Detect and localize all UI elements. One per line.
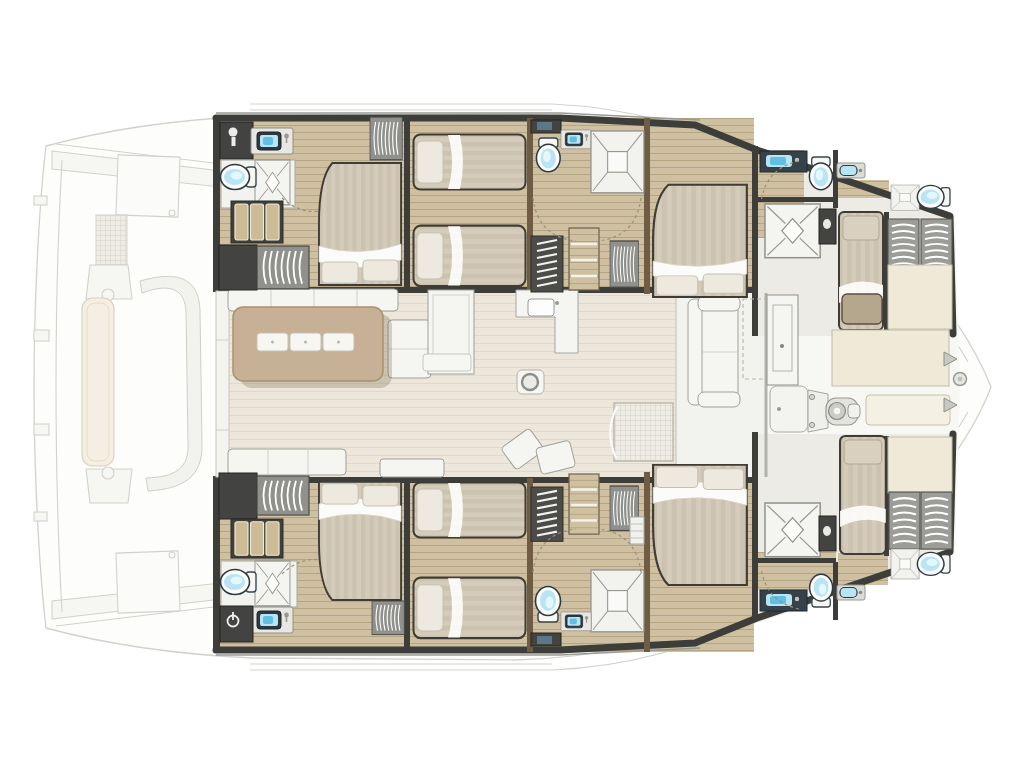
toilet <box>221 570 257 595</box>
toilet <box>917 552 950 575</box>
wardrobe <box>889 492 920 549</box>
berth-foot-cushion <box>842 294 882 324</box>
galley-faucet <box>555 301 559 305</box>
handle <box>823 219 831 229</box>
companionway-port <box>531 227 639 292</box>
shower <box>765 204 820 258</box>
windlass <box>826 398 860 425</box>
wood-step <box>610 227 639 240</box>
sun-pad <box>832 330 949 386</box>
bolt <box>809 422 814 427</box>
coffee-table <box>423 354 471 371</box>
deck-locker-top <box>116 155 180 217</box>
technical-hatch <box>614 403 673 461</box>
floor-plan-canvas: Catamaran yacht floor plan — top-down ca… <box>0 0 1024 768</box>
hanging-locker <box>257 246 309 289</box>
door-handle <box>780 344 784 348</box>
hanging-locker <box>257 476 309 515</box>
vanity-sink-basin <box>770 596 786 604</box>
divider <box>752 146 758 336</box>
bow-roller-pin <box>958 377 963 382</box>
double-bed <box>319 163 401 285</box>
placemat <box>323 333 354 351</box>
sun-pad <box>866 395 950 425</box>
double-bed <box>653 185 747 297</box>
locker <box>219 245 257 290</box>
twin-bed <box>414 483 526 538</box>
toilet <box>809 157 832 190</box>
wardrobe-drawers <box>231 519 283 558</box>
bolt <box>809 394 814 399</box>
vanity-sink-basin <box>770 157 786 165</box>
floor-plan-page: Catamaran yacht floor plan — top-down ca… <box>0 0 1024 768</box>
wardrobe-drawers <box>231 201 283 243</box>
shelf-unit <box>569 228 599 290</box>
mast-hinge <box>102 467 114 479</box>
salon-bench-bottom <box>228 449 346 475</box>
handle-icon <box>229 128 238 137</box>
bench-pad <box>888 437 952 493</box>
double-bed <box>653 465 747 585</box>
shelf-item <box>537 122 552 130</box>
bench-pad <box>888 265 952 329</box>
sink <box>251 128 293 154</box>
helm-grid-panel <box>96 215 127 265</box>
wardrobe <box>921 219 952 271</box>
twin-bed <box>414 135 526 190</box>
wardrobe <box>921 492 952 549</box>
placemat <box>290 333 321 351</box>
divider <box>404 118 410 290</box>
twin-bed <box>414 578 526 639</box>
toilet <box>917 185 950 208</box>
deck-locker-bottom <box>116 551 180 613</box>
forward-door <box>767 295 798 385</box>
hanging-locker <box>370 117 402 160</box>
double-bed <box>319 482 401 600</box>
toilet <box>536 587 561 623</box>
shower <box>591 131 644 193</box>
shower <box>891 549 919 579</box>
shelf-item <box>537 636 552 644</box>
toilet <box>221 165 257 190</box>
locker <box>220 122 253 159</box>
handle-icon <box>232 137 236 146</box>
stairs <box>531 236 563 292</box>
divider <box>644 118 650 294</box>
divider <box>404 478 410 652</box>
deck-plate <box>770 386 808 432</box>
small-sink <box>837 163 865 178</box>
bow-wall <box>756 558 836 563</box>
plate-bolt <box>777 407 781 411</box>
handle <box>823 526 831 536</box>
forward-cabin-starboard <box>653 465 747 585</box>
single-berth <box>840 436 886 554</box>
toilet <box>810 574 833 607</box>
side-bench <box>380 459 444 477</box>
shower <box>255 561 290 606</box>
faucet <box>795 597 799 601</box>
sink <box>251 607 293 633</box>
wardrobe <box>888 219 919 271</box>
sink <box>561 612 591 631</box>
aft-sliding-door <box>216 291 229 477</box>
sink <box>561 130 591 149</box>
shower <box>255 160 290 205</box>
shower <box>765 503 820 557</box>
toilet <box>536 138 560 172</box>
hanging-locker <box>610 241 639 287</box>
shelf-unit <box>569 474 599 534</box>
mast-post-ring <box>522 374 538 390</box>
placemat <box>257 333 288 351</box>
forward-cabin-port <box>653 185 747 297</box>
hanging-locker <box>372 601 404 635</box>
twin-bed <box>414 226 526 287</box>
divider <box>752 432 758 620</box>
shower <box>891 185 919 210</box>
shower <box>591 570 644 632</box>
divider <box>644 472 650 652</box>
locker <box>219 473 257 519</box>
bow-wall <box>756 197 836 202</box>
galley-sink <box>528 299 554 316</box>
vestibule-sofa <box>688 296 740 407</box>
small-sink <box>837 585 865 600</box>
